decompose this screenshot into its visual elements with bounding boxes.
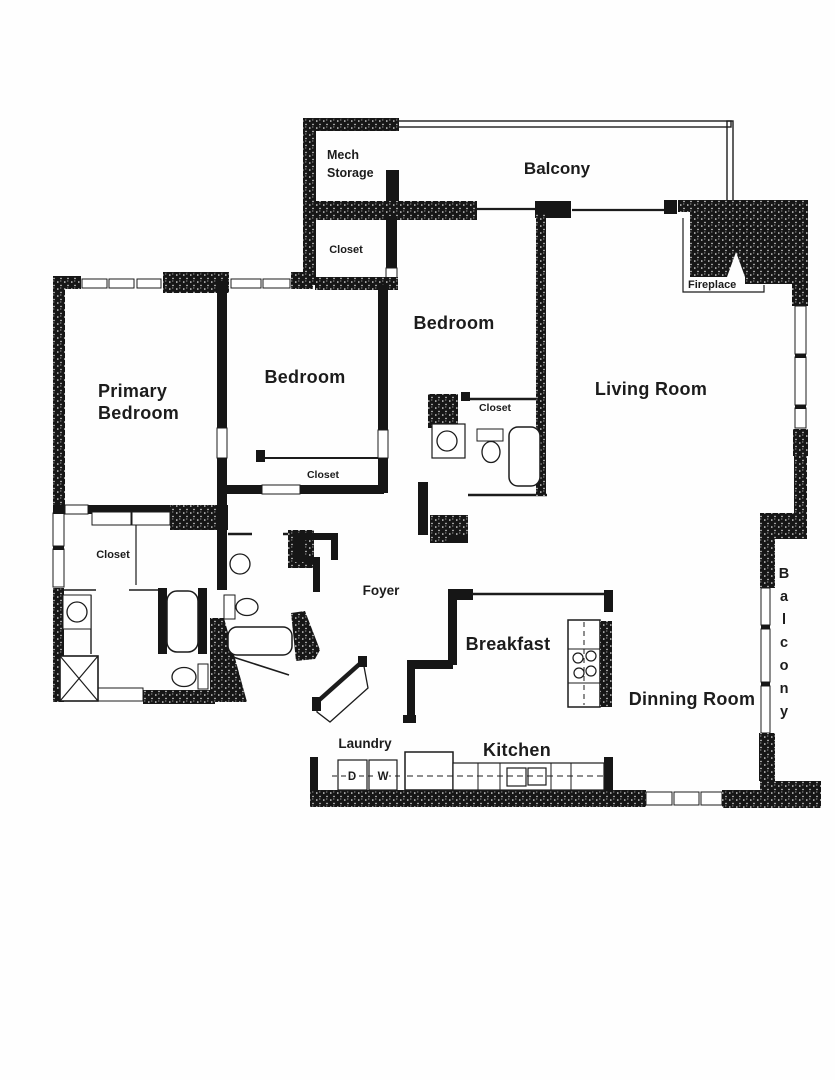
- door-threshold: [217, 428, 227, 458]
- laundry-label: Laundry: [338, 736, 392, 751]
- bath-wall: [418, 482, 428, 535]
- bedroom-wall: [378, 458, 388, 493]
- floor-plan-page: Mech Storage Balcony Closet Primary Bedr…: [0, 0, 835, 1080]
- toilet: [482, 442, 500, 463]
- balcony-door: [761, 629, 770, 682]
- bathtub: [228, 627, 292, 655]
- mullion: [795, 354, 806, 358]
- window: [231, 279, 261, 288]
- mech-storage-label: Storage: [327, 166, 374, 180]
- left-wall-upper: [53, 276, 65, 513]
- room-labels: Mech Storage Balcony Closet Primary Bedr…: [96, 148, 755, 783]
- top-wall-pier: [53, 276, 81, 289]
- primary-bottom-wall: [53, 505, 65, 514]
- window: [701, 792, 722, 805]
- closet-bath-label: Closet: [479, 402, 512, 414]
- window: [109, 279, 134, 288]
- chimney: [792, 284, 808, 306]
- bottom-wall: [310, 790, 646, 807]
- closet-bottom-wall: [300, 485, 384, 494]
- living-room-label: Living Room: [595, 379, 707, 399]
- window: [137, 279, 161, 288]
- wall-tick: [461, 392, 470, 401]
- closet-shelf: [92, 512, 131, 525]
- wall-tick: [312, 697, 321, 711]
- window: [53, 549, 64, 587]
- laundry-post: [310, 757, 318, 791]
- kitchen-sink: [507, 768, 526, 786]
- window: [82, 279, 107, 288]
- tub-wall: [158, 588, 167, 654]
- mech-storage-top-wall: [303, 118, 399, 131]
- floor-plan-drawing: Mech Storage Balcony Closet Primary Bedr…: [0, 0, 835, 1080]
- toilet-tank: [224, 595, 235, 619]
- fireplace-mass: [678, 200, 808, 284]
- sink: [230, 554, 250, 574]
- balcony-rail: [398, 121, 731, 127]
- toilet: [236, 599, 258, 616]
- balcony-right-label: Balcony: [776, 566, 792, 727]
- window: [795, 306, 806, 354]
- burner: [586, 651, 596, 661]
- balcony-door: [761, 588, 770, 625]
- entry-steps: [317, 661, 368, 722]
- hall-wall: [331, 538, 338, 560]
- burner: [574, 668, 584, 678]
- breakfast-corner: [604, 590, 613, 612]
- mullion: [53, 546, 64, 550]
- burner: [573, 653, 583, 663]
- door-threshold: [65, 505, 88, 514]
- breakfast-left-wall: [448, 589, 457, 665]
- bedroom-center-label: Bedroom: [413, 313, 494, 333]
- burner: [586, 666, 596, 676]
- window: [263, 279, 290, 288]
- mech-storage-label: Mech: [327, 148, 359, 162]
- door-threshold: [262, 485, 300, 494]
- foyer-label: Foyer: [363, 583, 401, 598]
- breakfast-label: Breakfast: [466, 634, 551, 654]
- wall-tick: [664, 200, 677, 214]
- chamfer-wall-foyer: [291, 611, 320, 661]
- bottom-wall: [722, 790, 762, 807]
- primary-bedroom-label: Bedroom: [98, 403, 179, 423]
- window: [53, 513, 64, 546]
- closet-walkin-label: Closet: [96, 549, 130, 561]
- kitchen-label: Kitchen: [483, 740, 551, 760]
- stove-wall-strip: [600, 621, 612, 707]
- toilet: [172, 668, 196, 687]
- kitchen-dining-stub: [604, 757, 613, 791]
- toilet-tank: [198, 664, 208, 689]
- sink: [437, 431, 457, 451]
- closet-bottom-wall: [222, 485, 262, 494]
- hall-wall: [295, 538, 305, 562]
- bedroom-wall: [378, 285, 388, 430]
- bathtub: [167, 591, 198, 652]
- balcony-top-label: Balcony: [524, 159, 591, 178]
- kitchen-jog-wall: [407, 662, 415, 720]
- door-threshold: [95, 688, 143, 701]
- bedroom-left-label: Bedroom: [264, 367, 345, 387]
- window: [646, 792, 672, 805]
- mech-storage-door-post: [386, 170, 399, 206]
- wall-tick: [403, 715, 416, 723]
- balcony-wall: [759, 733, 775, 781]
- fridge: [405, 752, 453, 790]
- balcony-door: [761, 686, 770, 733]
- mech-storage-left-wall: [303, 119, 316, 285]
- primary-right-wall: [217, 281, 227, 428]
- wall-step: [760, 513, 807, 539]
- primary-bedroom-label: Primary: [98, 381, 167, 401]
- balcony-rail: [727, 121, 733, 205]
- closet-shelf: [132, 512, 170, 525]
- chamfer-line: [233, 657, 289, 675]
- fireplace-label: Fireplace: [688, 279, 736, 291]
- right-wall: [794, 456, 807, 516]
- sink: [67, 602, 87, 622]
- window: [674, 792, 699, 805]
- shelf: [477, 429, 503, 441]
- primary-right-wall: [217, 458, 227, 590]
- hall-wall: [313, 562, 320, 592]
- mullion: [795, 405, 806, 409]
- mullion: [761, 625, 770, 629]
- wall-tick: [448, 535, 468, 543]
- wall-tick: [256, 450, 265, 462]
- tub-wall: [198, 588, 207, 654]
- window: [795, 357, 806, 405]
- window: [795, 408, 806, 428]
- closet-top-label: Closet: [329, 244, 363, 256]
- closet-right-wall: [386, 216, 397, 270]
- door-threshold: [378, 430, 388, 458]
- bathtub: [509, 427, 540, 486]
- dining-room-label: Dinning Room: [629, 689, 756, 709]
- wall-tick: [358, 656, 367, 667]
- mullion: [761, 682, 770, 686]
- suite-bottom-wall: [143, 690, 215, 704]
- closet-bedroom-label: Closet: [307, 469, 340, 481]
- balcony-wall: [760, 539, 775, 588]
- washer-label: W: [378, 771, 389, 783]
- dryer-label: D: [348, 771, 356, 783]
- bath-wall-block: [428, 394, 458, 428]
- right-wall: [793, 429, 808, 456]
